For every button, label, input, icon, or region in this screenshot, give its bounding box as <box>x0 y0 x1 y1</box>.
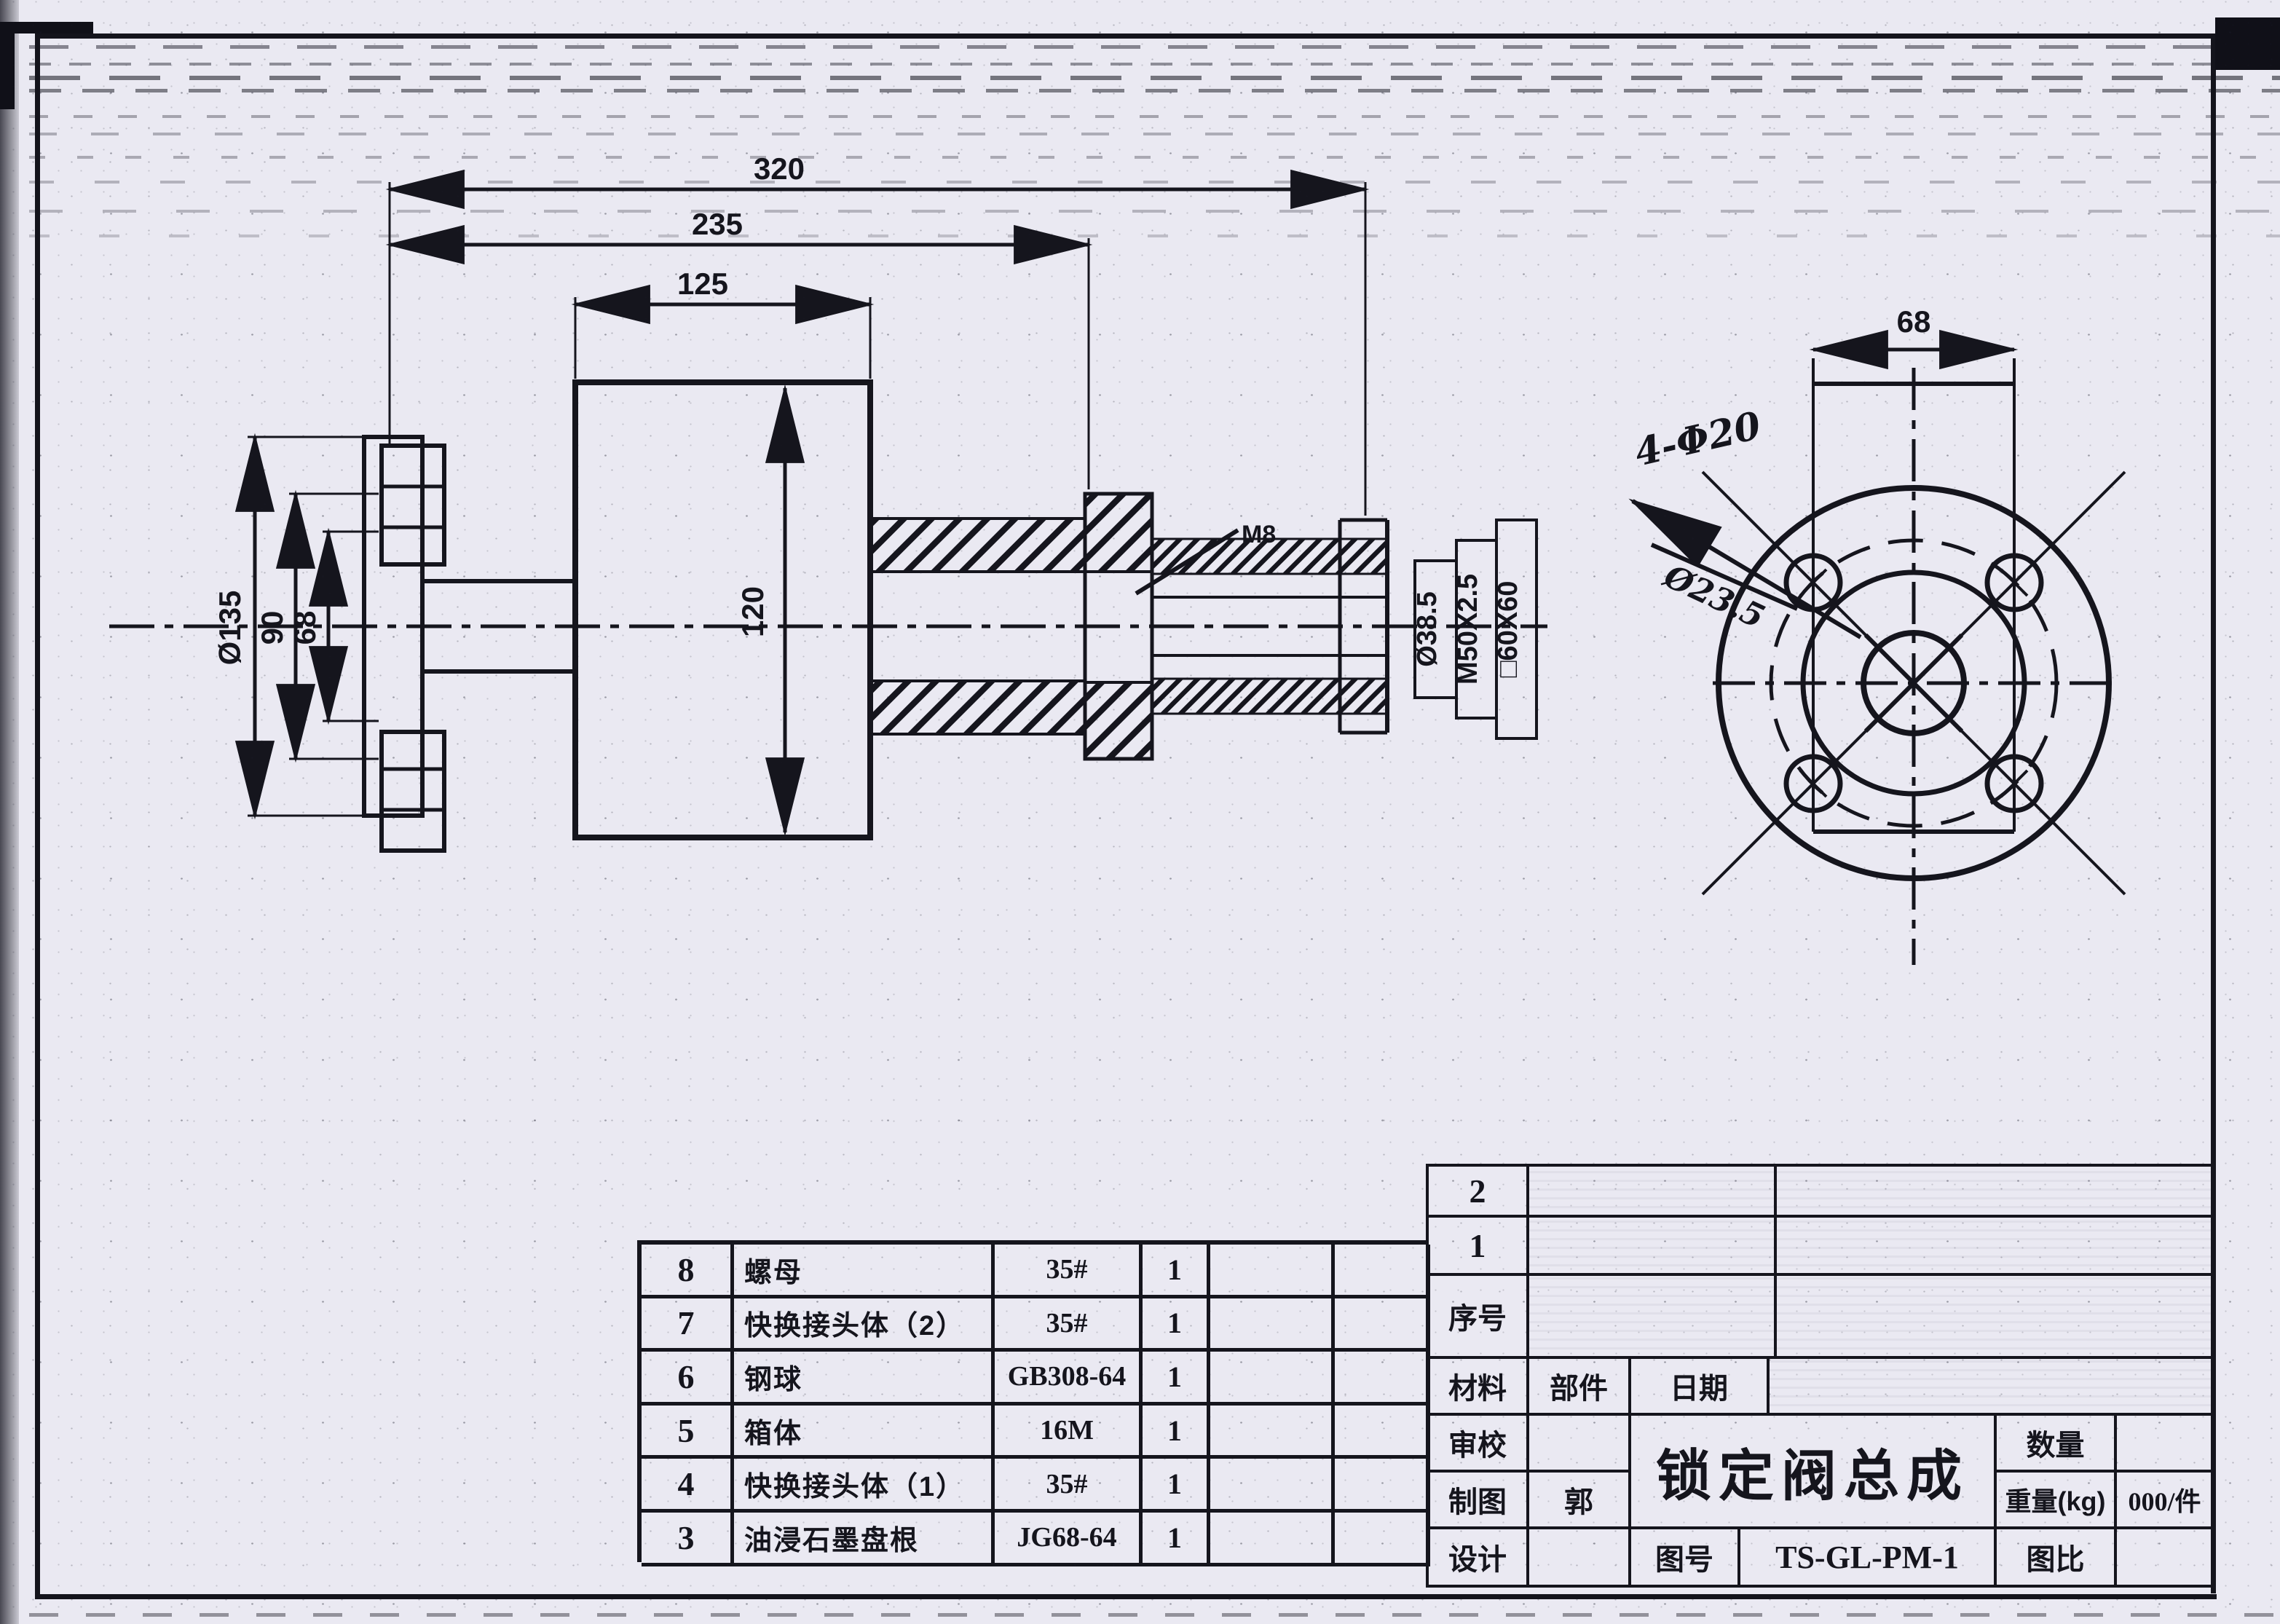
index-empty <box>1526 1273 1777 1359</box>
part-material: GB308-64 <box>995 1352 1143 1406</box>
index-row-2: 2 <box>1426 1164 1529 1218</box>
dim-235: 235 <box>692 207 743 241</box>
scale-value-empty <box>2114 1526 2215 1588</box>
dim-thread: M50X2.5 <box>1453 574 1483 685</box>
part-name: 螺母 <box>734 1245 995 1298</box>
part-no: 7 <box>642 1298 734 1352</box>
draft-label: 制图 <box>1426 1470 1529 1529</box>
part-empty-cell <box>1335 1513 1430 1566</box>
part-empty-cell <box>1335 1245 1430 1298</box>
dim-flange-od: Ø135 <box>213 591 247 666</box>
part-no: 6 <box>642 1352 734 1406</box>
part-qty: 1 <box>1143 1406 1210 1459</box>
drawing-title: 锁定阀总成 <box>1628 1413 1997 1529</box>
dim-120: 120 <box>735 586 770 637</box>
date-label: 日期 <box>1628 1356 1770 1416</box>
fig-no-label: 图号 <box>1628 1526 1740 1588</box>
part-qty: 1 <box>1143 1352 1210 1406</box>
part-name: 快换接头体（1） <box>734 1459 995 1513</box>
design-empty <box>1526 1526 1631 1588</box>
leader-label-m8: M8 <box>1242 521 1276 548</box>
side-view-dimensions <box>248 182 1365 832</box>
review-label: 审校 <box>1426 1413 1529 1473</box>
design-label: 设计 <box>1426 1526 1529 1588</box>
part-material: 35# <box>995 1245 1143 1298</box>
title-block: 2 1 序号 材料 部件 日期 审校 制图 郭 设计 锁定阀总成 数量 重量(k… <box>1426 1164 2215 1588</box>
review-empty <box>1526 1413 1631 1473</box>
index-empty <box>1774 1164 2215 1218</box>
part-label: 部件 <box>1526 1356 1631 1416</box>
part-qty: 1 <box>1143 1513 1210 1566</box>
material-label: 材料 <box>1426 1356 1529 1416</box>
index-empty <box>1774 1215 2215 1276</box>
weight-value: 000/件 <box>2114 1470 2215 1529</box>
part-material: 35# <box>995 1298 1143 1352</box>
dim-320: 320 <box>754 151 805 186</box>
part-empty-cell <box>1335 1406 1430 1459</box>
scanned-engineering-drawing: { "annotations": { "dim_total_length": "… <box>0 0 2280 1624</box>
part-name: 快换接头体（2） <box>734 1298 995 1352</box>
dim-bore: Ø38.5 <box>1412 591 1443 667</box>
draftsman-name: 郭 <box>1526 1470 1631 1529</box>
index-label: 序号 <box>1426 1273 1529 1359</box>
index-empty <box>1526 1164 1777 1218</box>
part-qty: 1 <box>1143 1245 1210 1298</box>
side-view <box>109 382 1547 851</box>
part-material: 16M <box>995 1406 1143 1459</box>
dim-front-span: 68 <box>1897 304 1931 339</box>
part-empty-cell <box>1210 1352 1335 1406</box>
dim-bolt-circle: 90 <box>255 611 289 645</box>
part-material: 35# <box>995 1459 1143 1513</box>
part-no: 8 <box>642 1245 734 1298</box>
part-empty-cell <box>1210 1298 1335 1352</box>
parts-table: 8 螺母 35# 1 7 快换接头体（2） 35# 1 6 钢球 GB308-6… <box>637 1240 1426 1562</box>
index-empty <box>1526 1215 1777 1276</box>
index-empty <box>1774 1273 2215 1359</box>
note-holes-4xd20: 4-Φ20 <box>1630 403 1765 476</box>
part-empty-cell <box>1335 1298 1430 1352</box>
part-no: 4 <box>642 1459 734 1513</box>
dim-125: 125 <box>677 267 728 301</box>
part-no: 5 <box>642 1406 734 1459</box>
dim-bolt-span: 68 <box>288 611 322 645</box>
dim-square-end: □60X60 <box>1493 581 1523 678</box>
part-empty-cell <box>1335 1352 1430 1406</box>
part-material: JG68-64 <box>995 1513 1143 1566</box>
qty-label: 数量 <box>1994 1413 2117 1473</box>
part-empty-cell <box>1210 1459 1335 1513</box>
weight-label: 重量(kg) <box>1994 1470 2117 1529</box>
part-qty: 1 <box>1143 1298 1210 1352</box>
part-empty-cell <box>1335 1459 1430 1513</box>
part-name: 油浸石墨盘根 <box>734 1513 995 1566</box>
qty-value-empty <box>2114 1413 2215 1473</box>
fig-no-value: TS-GL-PM-1 <box>1737 1526 1997 1588</box>
date-empty <box>1767 1356 2215 1416</box>
scale-label: 图比 <box>1994 1526 2117 1588</box>
part-empty-cell <box>1210 1245 1335 1298</box>
part-no: 3 <box>642 1513 734 1566</box>
part-empty-cell <box>1210 1513 1335 1566</box>
part-name: 箱体 <box>734 1406 995 1459</box>
part-empty-cell <box>1210 1406 1335 1459</box>
part-name: 钢球 <box>734 1352 995 1406</box>
part-qty: 1 <box>1143 1459 1210 1513</box>
index-row-1: 1 <box>1426 1215 1529 1276</box>
